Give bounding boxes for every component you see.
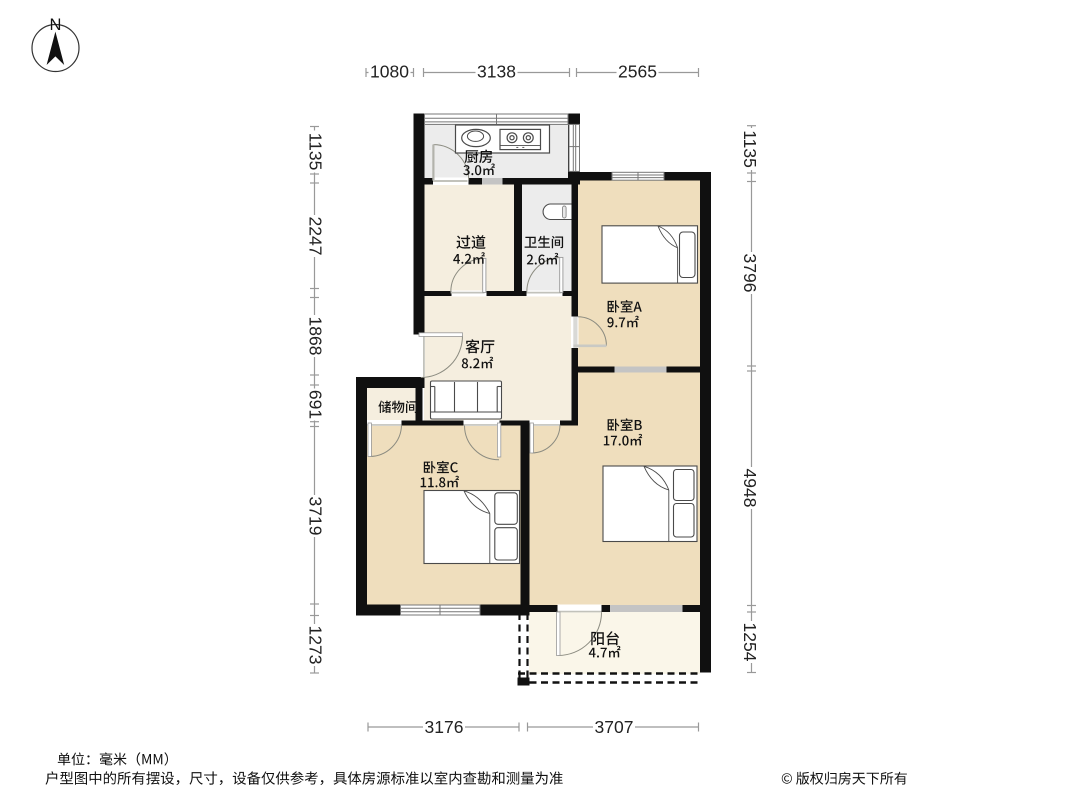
svg-text:2565: 2565: [618, 62, 657, 82]
svg-text:4948: 4948: [740, 469, 760, 508]
svg-text:3176: 3176: [425, 717, 464, 737]
svg-text:1080: 1080: [370, 62, 409, 82]
svg-text:2247: 2247: [305, 217, 325, 256]
svg-text:3707: 3707: [595, 717, 634, 737]
svg-text:1254: 1254: [740, 623, 760, 662]
svg-text:3138: 3138: [477, 62, 516, 82]
svg-text:1135: 1135: [305, 133, 325, 171]
svg-text:3796: 3796: [740, 254, 760, 293]
svg-text:1868: 1868: [305, 317, 325, 356]
svg-text:691: 691: [305, 390, 325, 419]
svg-text:3719: 3719: [305, 497, 325, 536]
svg-text:N: N: [50, 16, 62, 34]
svg-text:1273: 1273: [305, 626, 325, 665]
svg-text:1135: 1135: [740, 130, 760, 168]
